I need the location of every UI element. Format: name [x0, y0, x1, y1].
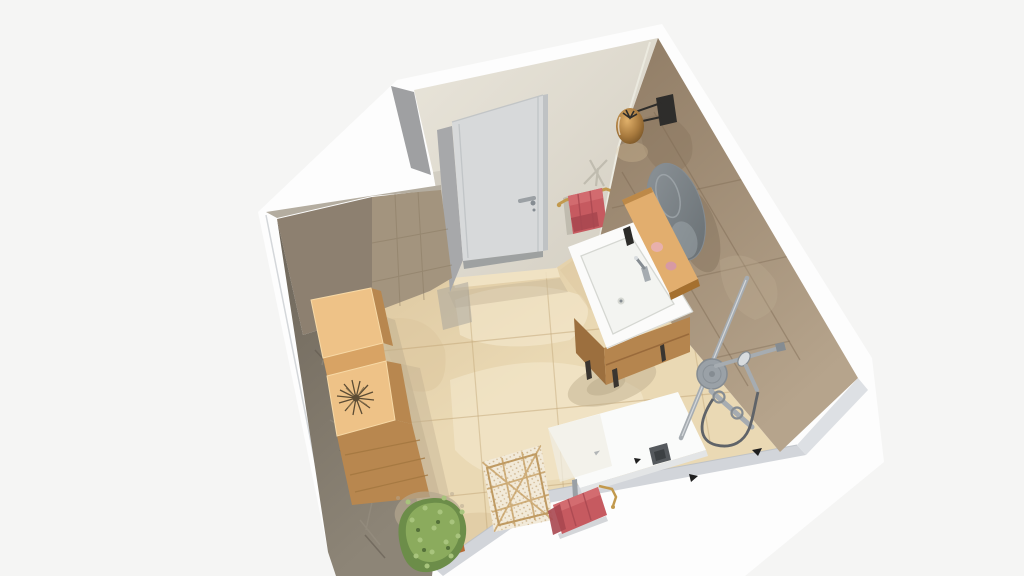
faucet-tip [634, 256, 638, 260]
soap-round[interactable] [666, 262, 677, 271]
bar-end-curl [557, 203, 561, 207]
reveal-floor-shade [437, 282, 472, 330]
lamp-glow [616, 142, 648, 162]
door-panel[interactable] [452, 95, 543, 261]
shower-head-center [709, 371, 715, 377]
bathroom-3d-view [0, 0, 1024, 576]
front-rail-post [572, 479, 578, 498]
soap-round[interactable] [651, 242, 663, 252]
brass-hook-end [611, 505, 615, 509]
grass-center [353, 395, 360, 402]
door-keyhole [533, 209, 536, 212]
lamp-globe[interactable] [616, 108, 644, 144]
door-frame-right [543, 94, 548, 251]
door-handle-rose [531, 201, 536, 206]
entry-door[interactable] [452, 94, 548, 269]
red-towel[interactable] [568, 188, 607, 234]
sink-drain-center [620, 300, 623, 303]
